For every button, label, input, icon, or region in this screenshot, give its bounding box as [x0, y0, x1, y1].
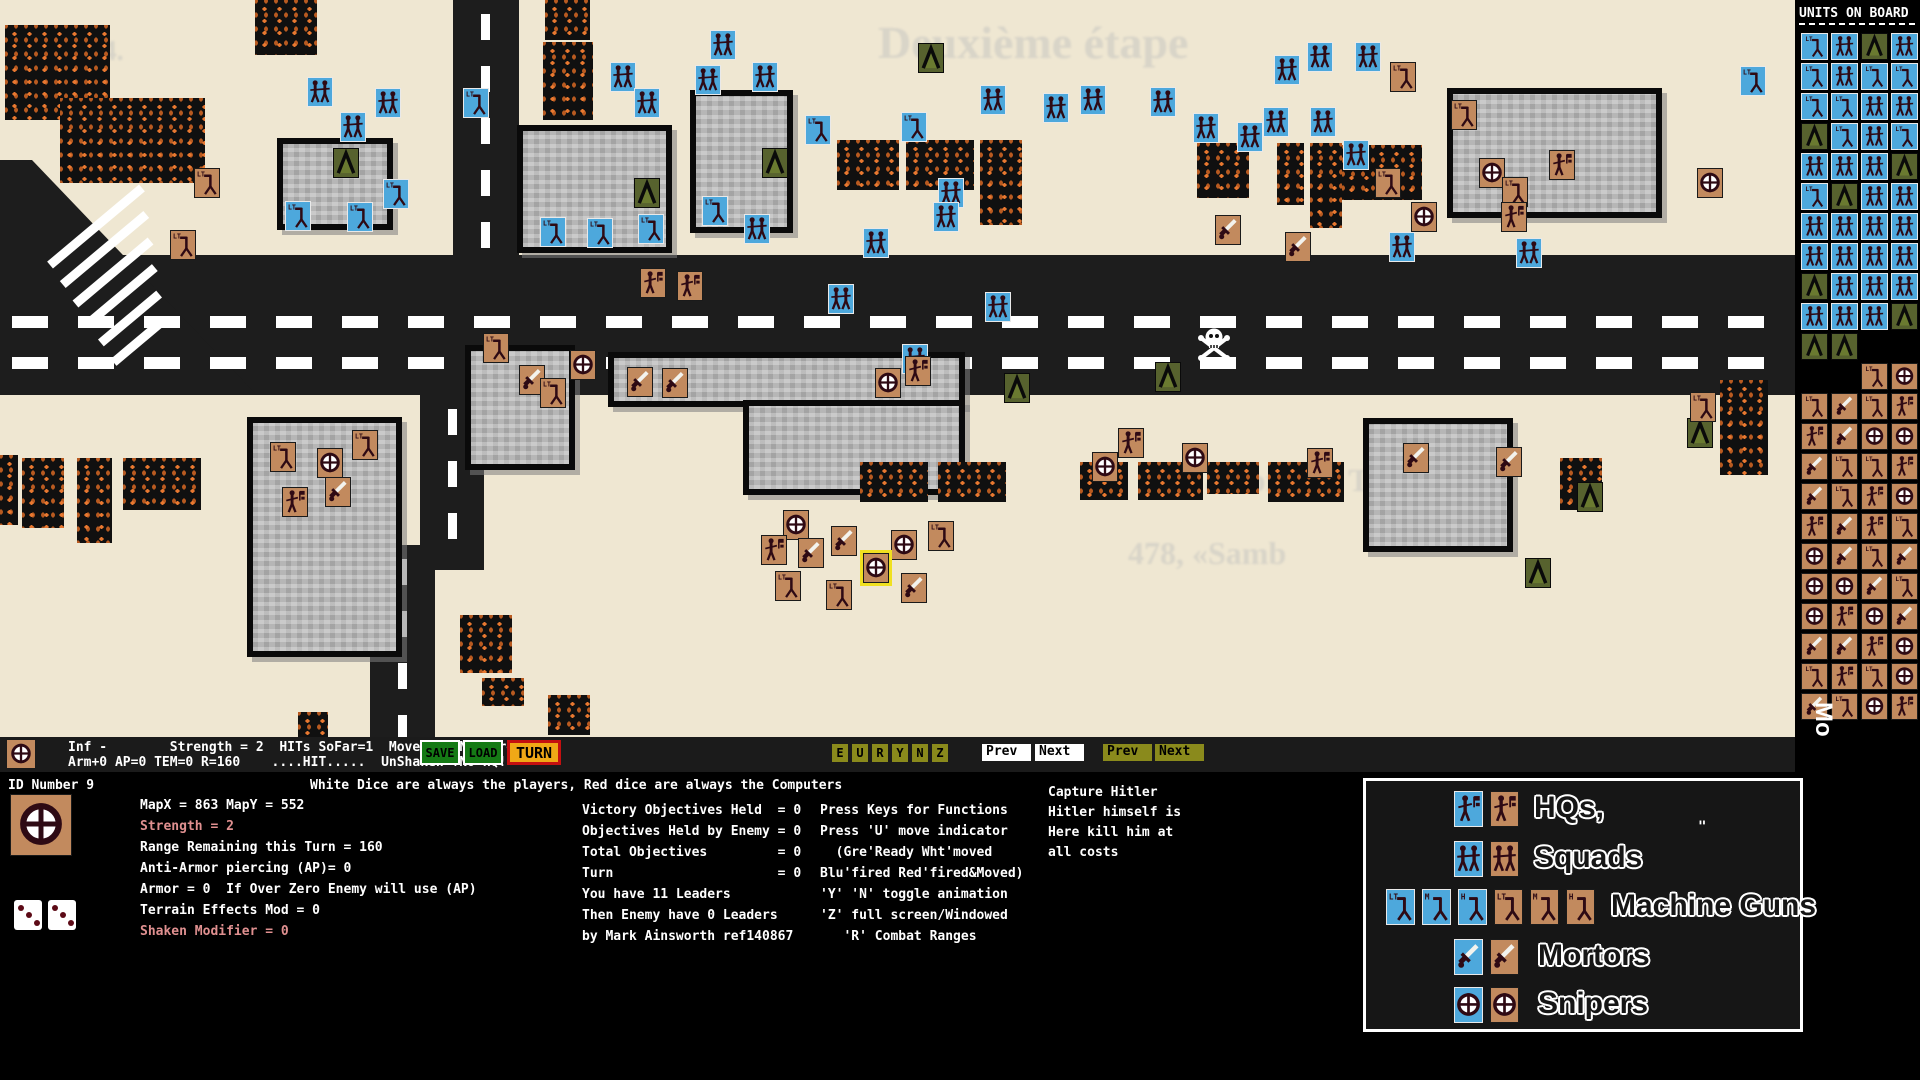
squad-unit-icon[interactable] — [1307, 42, 1333, 72]
lt-machine-gun-unit-icon[interactable]: LT — [540, 378, 566, 408]
tent-unit-icon[interactable] — [1861, 33, 1888, 60]
lt-machine-gun-unit-icon[interactable]: LT — [1891, 513, 1918, 540]
mortar-unit-icon[interactable] — [1285, 232, 1311, 262]
hq-unit-icon[interactable] — [1549, 150, 1575, 180]
sniper-unit-icon — [10, 794, 72, 856]
stone-building — [1363, 418, 1513, 552]
squad-unit-icon[interactable] — [1310, 107, 1336, 137]
sniper-unit-icon[interactable] — [1697, 168, 1723, 198]
squad-unit-icon[interactable] — [744, 214, 770, 244]
rubble-building — [545, 0, 590, 40]
info-text-line: Strength = 2 — [140, 819, 234, 834]
road-dash — [12, 316, 48, 328]
squad-unit-icon[interactable] — [1389, 232, 1415, 262]
rubble-building — [255, 0, 317, 55]
sniper-unit-icon[interactable] — [1861, 603, 1888, 630]
lt-machine-gun-unit-icon[interactable]: LT — [483, 333, 509, 363]
squad-unit-icon[interactable] — [1237, 122, 1263, 152]
vertical-label: Mo — [1809, 702, 1837, 762]
lt-machine-gun-unit-icon[interactable]: LT — [928, 521, 954, 551]
road-dash — [1068, 357, 1104, 369]
legend-label-squads: Squads — [1534, 841, 1642, 875]
squad-unit-icon[interactable] — [1831, 213, 1858, 240]
sniper-unit-icon[interactable] — [1801, 543, 1828, 570]
squad-unit-icon[interactable] — [695, 65, 721, 95]
key-button-n[interactable]: N — [912, 744, 928, 762]
lt-machine-gun-unit-icon[interactable]: LT — [383, 179, 409, 209]
squad-unit-icon[interactable] — [1831, 63, 1858, 90]
road-dash — [210, 316, 246, 328]
lt-machine-gun-unit-icon[interactable]: LT — [638, 214, 664, 244]
m-machine-gun-unit-icon: M — [1422, 889, 1451, 925]
squad-unit-icon[interactable] — [1891, 213, 1918, 240]
hq-unit-icon[interactable] — [1831, 663, 1858, 690]
hq-unit-icon[interactable] — [1891, 393, 1918, 420]
info-text-line: Armor = 0 If Over Zero Enemy will use (A… — [140, 882, 477, 897]
hq-unit-icon[interactable] — [1861, 633, 1888, 660]
squad-unit-icon[interactable] — [1831, 273, 1858, 300]
svg-text:LT: LT — [1389, 893, 1399, 902]
sniper-unit-icon[interactable] — [1891, 363, 1918, 390]
squad-unit-icon[interactable] — [1891, 93, 1918, 120]
info-text-line: Press Keys for Functions — [820, 803, 1008, 818]
lt-machine-gun-unit-icon[interactable]: LT — [194, 168, 220, 198]
sniper-unit-icon[interactable] — [1801, 603, 1828, 630]
info-text-line: Turn = 0 — [582, 866, 801, 881]
lt-machine-gun-unit-icon[interactable]: LT — [1390, 62, 1416, 92]
sniper-unit-icon[interactable] — [1891, 663, 1918, 690]
mortar-unit-icon[interactable] — [1496, 447, 1522, 477]
lt-machine-gun-unit-icon[interactable]: LT — [1801, 393, 1828, 420]
hq-unit-icon[interactable] — [1801, 513, 1828, 540]
lt-machine-gun-unit-icon[interactable]: LT — [1451, 100, 1477, 130]
svg-text:LT: LT — [355, 433, 363, 441]
lt-machine-gun-unit-icon[interactable]: LT — [1861, 453, 1888, 480]
lt-machine-gun-unit-icon[interactable]: LT — [1861, 543, 1888, 570]
tent-unit-icon[interactable] — [1687, 418, 1713, 448]
sniper-unit-icon[interactable] — [1801, 573, 1828, 600]
squad-unit-icon[interactable] — [1831, 33, 1858, 60]
lt-machine-gun-unit-icon[interactable]: LT — [463, 88, 489, 118]
lt-machine-gun-unit-icon[interactable]: LT — [1861, 363, 1888, 390]
lt-machine-gun-unit-icon[interactable]: LT — [1831, 453, 1858, 480]
lt-machine-gun-unit-icon[interactable]: LT — [1861, 63, 1888, 90]
hq-unit-icon[interactable] — [1307, 448, 1333, 478]
sniper-unit-icon[interactable] — [1891, 633, 1918, 660]
squad-unit-icon[interactable] — [1861, 183, 1888, 210]
tent-unit-icon[interactable] — [1801, 273, 1828, 300]
tent-unit-icon[interactable] — [1004, 373, 1030, 403]
legend-quote-mark: " — [1698, 819, 1706, 835]
svg-text:LT: LT — [273, 445, 281, 453]
road-dash — [1596, 357, 1632, 369]
svg-text:LT: LT — [1378, 171, 1386, 179]
info-text-line: 'Y' 'N' toggle animation — [820, 887, 1008, 902]
tent-unit-icon[interactable] — [762, 148, 788, 178]
road-dash — [474, 316, 510, 328]
road-dash — [398, 715, 407, 737]
road-dash — [738, 316, 774, 328]
hq-unit-icon[interactable] — [282, 487, 308, 517]
lt-machine-gun-unit-icon[interactable]: LT — [352, 430, 378, 460]
rubble-building — [1310, 143, 1342, 228]
sniper-unit-icon[interactable] — [317, 448, 343, 478]
squad-unit-icon[interactable] — [1355, 42, 1381, 72]
squad-unit-icon[interactable] — [1891, 33, 1918, 60]
road-dash — [398, 663, 407, 689]
info-text-line: Range Remaining this Turn = 160 — [140, 840, 383, 855]
road-dash — [1530, 316, 1566, 328]
unit-legend-panel: " HQs,SquadsLTMHLTMHMachine GunsMortorsS… — [1363, 778, 1803, 1032]
road-dash — [1596, 316, 1632, 328]
selected-unit-icon — [6, 739, 36, 769]
svg-text:LT: LT — [543, 381, 551, 389]
road-dash — [481, 118, 490, 144]
lt-machine-gun-unit-icon[interactable]: LT — [1861, 663, 1888, 690]
hq-unit-icon[interactable] — [677, 271, 703, 301]
mortar-unit-icon[interactable] — [325, 477, 351, 507]
svg-text:H: H — [1569, 893, 1574, 902]
mortar-unit-icon — [1490, 939, 1519, 975]
mortar-unit-icon[interactable] — [901, 573, 927, 603]
rubble-building — [0, 455, 18, 525]
sniper-unit-icon[interactable] — [875, 368, 901, 398]
key-button-r[interactable]: R — [872, 744, 888, 762]
h-machine-gun-unit-icon: H — [1458, 889, 1487, 925]
lt-machine-gun-unit-icon[interactable]: LT — [1831, 483, 1858, 510]
road-dash — [1266, 357, 1302, 369]
svg-text:LT: LT — [466, 91, 474, 99]
squad-unit-icon[interactable] — [1861, 153, 1888, 180]
lt-machine-gun-unit-icon[interactable]: LT — [1690, 392, 1716, 422]
mortar-unit-icon[interactable] — [1403, 443, 1429, 473]
road-dash — [1662, 357, 1698, 369]
lt-machine-gun-unit-icon[interactable]: LT — [1831, 123, 1858, 150]
lt-machine-gun-unit-icon[interactable]: LT — [775, 571, 801, 601]
squad-unit-icon[interactable] — [1891, 273, 1918, 300]
squad-unit-icon[interactable] — [863, 228, 889, 258]
svg-text:M: M — [1425, 893, 1430, 902]
squad-unit-icon[interactable] — [1274, 55, 1300, 85]
mortar-unit-icon[interactable] — [1215, 215, 1241, 245]
svg-text:LT: LT — [931, 524, 939, 532]
next-button-white[interactable]: Next — [1035, 744, 1084, 761]
road-dash — [1002, 357, 1038, 369]
squad-unit-icon[interactable] — [1516, 238, 1542, 268]
svg-text:LT: LT — [1454, 103, 1462, 111]
tent-unit-icon[interactable] — [634, 178, 660, 208]
hq-unit-icon[interactable] — [1831, 603, 1858, 630]
squad-unit-icon[interactable] — [1891, 243, 1918, 270]
sniper-unit-icon[interactable] — [1182, 443, 1208, 473]
tent-unit-icon[interactable] — [1577, 482, 1603, 512]
svg-text:LT: LT — [543, 220, 551, 228]
legend-label-hqs: HQs, — [1534, 791, 1604, 825]
squad-unit-icon[interactable] — [1801, 303, 1828, 330]
hq-unit-icon[interactable] — [1861, 513, 1888, 540]
load-button[interactable]: LOAD — [463, 740, 503, 765]
tent-unit-icon[interactable] — [1801, 123, 1828, 150]
mortar-unit-icon[interactable] — [1831, 423, 1858, 450]
svg-text:H: H — [1461, 893, 1466, 902]
prev-button-olive[interactable]: Prev — [1103, 744, 1152, 761]
hq-unit-icon[interactable] — [1861, 483, 1888, 510]
hq-unit-icon[interactable] — [1501, 202, 1527, 232]
tent-unit-icon[interactable] — [1891, 153, 1918, 180]
squad-unit-icon[interactable] — [752, 62, 778, 92]
rubble-building — [460, 615, 512, 673]
road-dash — [1464, 316, 1500, 328]
mortar-unit-icon[interactable] — [662, 368, 688, 398]
mortar-unit-icon[interactable] — [1891, 543, 1918, 570]
squad-unit-icon[interactable] — [710, 30, 736, 60]
svg-text:LT: LT — [829, 583, 837, 591]
road-dash — [276, 357, 312, 369]
squad-unit-icon[interactable] — [1891, 183, 1918, 210]
road-dash — [408, 316, 444, 328]
svg-text:LT: LT — [173, 233, 181, 241]
sniper-unit-icon[interactable] — [1411, 202, 1437, 232]
mortar-unit-icon[interactable] — [1831, 543, 1858, 570]
squad-unit-icon[interactable] — [375, 88, 401, 118]
battle-map[interactable]: Deuxième étapen 54.accordi di Ti478, «Sa… — [0, 0, 1795, 737]
svg-text:LT: LT — [1693, 395, 1701, 403]
info-text-line: by Mark Ainsworth ref140867 — [582, 929, 793, 944]
lt-machine-gun-unit-icon[interactable]: LT — [270, 442, 296, 472]
sniper-unit-icon — [1490, 987, 1519, 1023]
mortar-unit-icon[interactable] — [1861, 573, 1888, 600]
road-dash — [481, 14, 490, 40]
squad-unit-icon[interactable] — [1801, 243, 1828, 270]
lt-machine-gun-unit-icon[interactable]: LT — [1831, 93, 1858, 120]
rubble-building — [298, 712, 328, 737]
key-button-u[interactable]: U — [852, 744, 868, 762]
hq-unit-icon[interactable] — [1891, 453, 1918, 480]
lt-machine-gun-unit-icon[interactable]: LT — [1801, 93, 1828, 120]
lt-machine-gun-unit-icon[interactable]: LT — [540, 217, 566, 247]
hq-unit-icon[interactable] — [1891, 693, 1918, 720]
squad-unit-icon[interactable] — [1343, 140, 1369, 170]
info-text-line: Capture Hitler — [1048, 785, 1158, 800]
svg-text:LT: LT — [350, 205, 358, 213]
rubble-building — [482, 678, 524, 706]
lt-machine-gun-unit-icon[interactable]: LT — [170, 230, 196, 260]
tent-unit-icon[interactable] — [1891, 303, 1918, 330]
road-dash — [276, 316, 312, 328]
road-dash — [210, 357, 246, 369]
info-text-line: Shaken Modifier = 0 — [140, 924, 289, 939]
svg-text:LT: LT — [1743, 69, 1751, 77]
info-text-line: 'Z' full screen/Windowed — [820, 908, 1008, 923]
tent-unit-icon[interactable] — [1831, 183, 1858, 210]
squad-unit-icon[interactable] — [985, 292, 1011, 322]
hq-unit-icon[interactable] — [1801, 423, 1828, 450]
mortar-unit-icon[interactable] — [1801, 633, 1828, 660]
mortar-unit-icon[interactable] — [1831, 393, 1858, 420]
road-dash — [481, 170, 490, 196]
hq-unit-icon — [1454, 791, 1483, 827]
squad-unit-icon[interactable] — [1150, 87, 1176, 117]
mortar-unit-icon[interactable] — [1891, 603, 1918, 630]
lt-machine-gun-unit-icon[interactable]: LT — [901, 112, 927, 142]
road-dash — [78, 357, 114, 369]
h-machine-gun-unit-icon: H — [1566, 889, 1595, 925]
lt-machine-gun-unit-icon[interactable]: LT — [1861, 393, 1888, 420]
squad-unit-icon[interactable] — [1861, 213, 1888, 240]
sniper-unit-icon[interactable] — [1891, 483, 1918, 510]
mortar-unit-icon[interactable] — [1801, 453, 1828, 480]
background-watermark-text: 478, «Samb — [1128, 535, 1286, 572]
lt-machine-gun-unit-icon[interactable]: LT — [587, 218, 613, 248]
info-text-line: Blu'fired Red'fired&Moved) — [820, 866, 1024, 881]
road-dash — [1398, 357, 1434, 369]
legend-label-snipers: Snipers — [1538, 987, 1648, 1021]
next-button-olive[interactable]: Next — [1155, 744, 1204, 761]
rubble-building — [938, 462, 1006, 502]
key-button-e[interactable]: E — [832, 744, 848, 762]
lt-machine-gun-unit-icon[interactable]: LT — [285, 201, 311, 231]
key-button-z[interactable]: Z — [932, 744, 948, 762]
road-dash — [1266, 316, 1302, 328]
squad-unit-icon[interactable] — [1043, 93, 1069, 123]
lt-machine-gun-unit-icon[interactable]: LT — [1801, 183, 1828, 210]
lt-machine-gun-unit-icon[interactable]: LT — [347, 202, 373, 232]
mortar-unit-icon[interactable] — [1831, 633, 1858, 660]
lt-machine-gun-unit-icon: LT — [1386, 889, 1415, 925]
sniper-unit-icon[interactable] — [570, 350, 596, 380]
tent-unit-icon[interactable] — [1155, 362, 1181, 392]
game-screen: Deuxième étapen 54.accordi di Ti478, «Sa… — [0, 0, 1920, 1080]
info-text-line: Total Objectives = 0 — [582, 845, 801, 860]
tent-unit-icon[interactable] — [918, 43, 944, 73]
svg-text:LT: LT — [486, 336, 494, 344]
squad-unit-icon[interactable] — [980, 85, 1006, 115]
rubble-building — [60, 98, 205, 183]
lt-machine-gun-unit-icon[interactable]: LT — [1801, 63, 1828, 90]
lt-machine-gun-unit-icon[interactable]: LT — [1801, 33, 1828, 60]
squad-unit-icon — [1490, 841, 1519, 877]
sniper-unit-icon[interactable] — [1891, 423, 1918, 450]
squad-unit-icon[interactable] — [634, 88, 660, 118]
info-text-line: Objectives Held by Enemy = 0 — [582, 824, 801, 839]
white-die — [48, 900, 76, 930]
hq-unit-icon[interactable] — [640, 268, 666, 298]
road-dash — [540, 316, 576, 328]
sniper-unit-icon[interactable] — [1861, 693, 1888, 720]
tent-unit-icon[interactable] — [1525, 558, 1551, 588]
road-dash — [1068, 316, 1104, 328]
title-underline — [1799, 23, 1915, 25]
rubble-building — [1277, 143, 1304, 205]
sniper-unit-icon[interactable] — [1831, 573, 1858, 600]
rubble-building — [1207, 462, 1259, 494]
legend-label-mortors: Mortors — [1538, 939, 1650, 973]
squad-unit-icon[interactable] — [340, 112, 366, 142]
road-dash — [481, 222, 490, 248]
squad-unit-icon[interactable] — [610, 62, 636, 92]
tent-unit-icon[interactable] — [333, 148, 359, 178]
svg-text:LT: LT — [590, 221, 598, 229]
sniper-unit-icon[interactable] — [863, 553, 889, 583]
rubble-building — [980, 140, 1022, 225]
lt-machine-gun-unit-icon[interactable]: LT — [805, 115, 831, 145]
svg-text:M: M — [1533, 893, 1538, 902]
hq-unit-icon[interactable] — [905, 356, 931, 386]
squad-unit-icon[interactable] — [1831, 243, 1858, 270]
road-dash — [1530, 357, 1566, 369]
svg-text:LT: LT — [1393, 65, 1401, 73]
rubble-building — [860, 462, 928, 502]
hq-unit-icon[interactable] — [1118, 428, 1144, 458]
squad-unit-icon[interactable] — [1193, 113, 1219, 143]
squad-unit-icon[interactable] — [1831, 153, 1858, 180]
sniper-unit-icon[interactable] — [891, 530, 917, 560]
lt-machine-gun-unit-icon: LT — [1494, 889, 1523, 925]
squad-unit-icon[interactable] — [1080, 85, 1106, 115]
hq-unit-icon[interactable] — [761, 535, 787, 565]
squad-unit-icon[interactable] — [1801, 153, 1828, 180]
mortar-unit-icon[interactable] — [1831, 513, 1858, 540]
info-text-line: Then Enemy have 0 Leaders — [582, 908, 778, 923]
tent-unit-icon[interactable] — [1801, 333, 1828, 360]
svg-text:LT: LT — [808, 118, 816, 126]
lt-machine-gun-unit-icon[interactable]: LT — [826, 580, 852, 610]
squad-unit-icon[interactable] — [1263, 107, 1289, 137]
sniper-unit-icon[interactable] — [1092, 452, 1118, 482]
squad-unit-icon[interactable] — [1861, 273, 1888, 300]
squad-unit-icon[interactable] — [1831, 303, 1858, 330]
status-bar: Inf - Strength = 2 HITs SoFar=1 Moveable… — [0, 737, 1795, 772]
legend-label-machineguns: Machine Guns — [1611, 889, 1816, 923]
lt-machine-gun-unit-icon[interactable]: LT — [1891, 573, 1918, 600]
lt-machine-gun-unit-icon[interactable]: LT — [1891, 63, 1918, 90]
tent-unit-icon[interactable] — [1831, 333, 1858, 360]
mortar-unit-icon[interactable] — [798, 538, 824, 568]
squad-unit-icon[interactable] — [1861, 93, 1888, 120]
info-text-line: You have 11 Leaders — [582, 887, 731, 902]
squad-unit-icon[interactable] — [307, 77, 333, 107]
squad-unit-icon[interactable] — [1861, 243, 1888, 270]
lt-machine-gun-unit-icon[interactable]: LT — [1375, 168, 1401, 198]
lt-machine-gun-unit-icon[interactable]: LT — [1891, 123, 1918, 150]
lt-machine-gun-unit-icon[interactable]: LT — [1801, 663, 1828, 690]
road-dash — [408, 357, 444, 369]
squad-unit-icon[interactable] — [1801, 213, 1828, 240]
sniper-unit-icon[interactable] — [1861, 423, 1888, 450]
rubble-building — [548, 695, 590, 735]
squad-unit-icon[interactable] — [1861, 303, 1888, 330]
road-dash — [1398, 316, 1434, 328]
squad-unit-icon[interactable] — [933, 202, 959, 232]
info-text-line: Hitler himself is — [1048, 805, 1181, 820]
rubble-building — [22, 458, 64, 528]
save-button[interactable]: SAVE — [420, 740, 460, 765]
key-button-y[interactable]: Y — [892, 744, 908, 762]
mortar-unit-icon[interactable] — [831, 526, 857, 556]
lt-machine-gun-unit-icon[interactable]: LT — [702, 196, 728, 226]
rubble-building — [543, 42, 593, 120]
prev-button-white[interactable]: Prev — [982, 744, 1031, 761]
road-dash — [1464, 357, 1500, 369]
mortar-unit-icon[interactable] — [627, 367, 653, 397]
mortar-unit-icon[interactable] — [1801, 483, 1828, 510]
turn-button[interactable]: TURN — [507, 740, 561, 765]
road-dash — [448, 461, 457, 487]
lt-machine-gun-unit-icon[interactable]: LT — [1740, 66, 1766, 96]
squad-unit-icon[interactable] — [1861, 123, 1888, 150]
squad-unit-icon[interactable] — [828, 284, 854, 314]
road-dash — [870, 316, 906, 328]
